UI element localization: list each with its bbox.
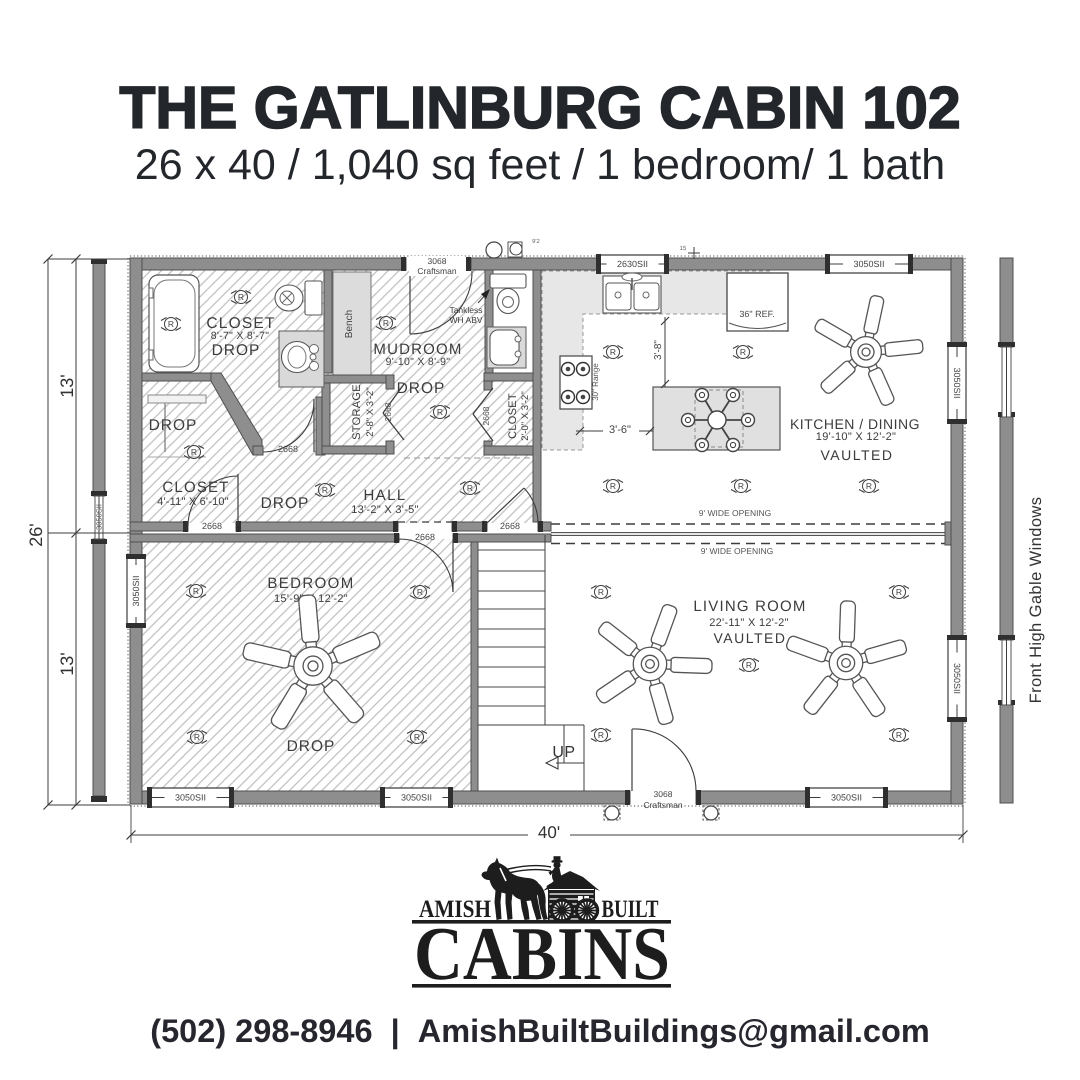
svg-text:Front High Gable Windows: Front High Gable Windows — [1027, 497, 1045, 704]
svg-text:3050SII: 3050SII — [131, 575, 141, 606]
svg-text:2668: 2668 — [500, 521, 520, 531]
svg-text:9' WIDE OPENING: 9' WIDE OPENING — [699, 508, 771, 518]
svg-text:2668: 2668 — [383, 402, 393, 421]
svg-text:R: R — [191, 447, 197, 457]
svg-text:40': 40' — [538, 823, 560, 842]
svg-text:9'-10" X 8'-9": 9'-10" X 8'-9" — [386, 356, 451, 368]
svg-text:9' WIDE OPENING: 9' WIDE OPENING — [701, 546, 773, 556]
svg-text:R: R — [414, 732, 420, 742]
svg-text:15: 15 — [680, 245, 687, 252]
svg-text:R: R — [168, 319, 174, 329]
svg-text:22'-11" X 12'-2": 22'-11" X 12'-2" — [709, 617, 789, 629]
svg-text:HALL: HALL — [363, 487, 406, 504]
svg-text:R: R — [866, 481, 872, 491]
svg-text:2668: 2668 — [202, 521, 222, 531]
svg-text:R: R — [610, 481, 616, 491]
svg-text:CLOSET: CLOSET — [162, 479, 229, 496]
svg-text:R: R — [238, 292, 244, 302]
svg-text:VAULTED: VAULTED — [714, 630, 787, 646]
svg-text:WH ABV: WH ABV — [449, 315, 482, 325]
svg-text:13': 13' — [57, 652, 77, 675]
svg-text:4'-11" X 6'-10": 4'-11" X 6'-10" — [157, 496, 229, 508]
svg-text:R: R — [598, 730, 604, 740]
svg-text:13'-2" X 3'-5": 13'-2" X 3'-5" — [351, 504, 419, 516]
svg-text:9'2: 9'2 — [532, 238, 540, 245]
svg-text:Craftsman: Craftsman — [417, 266, 456, 276]
svg-text:30" Range: 30" Range — [591, 363, 600, 401]
svg-text:3050SII: 3050SII — [831, 793, 862, 803]
svg-text:DROP: DROP — [397, 380, 446, 397]
svg-text:DROP: DROP — [149, 417, 198, 434]
svg-text:13': 13' — [57, 374, 77, 397]
svg-text:R: R — [610, 347, 616, 357]
svg-text:2668: 2668 — [481, 406, 491, 425]
svg-text:2668: 2668 — [415, 532, 435, 542]
svg-text:CLOSET: CLOSET — [507, 393, 519, 439]
svg-text:STORAGE: STORAGE — [351, 384, 363, 440]
svg-text:19'-10" X 12'-2": 19'-10" X 12'-2" — [816, 431, 896, 443]
svg-text:26': 26' — [26, 523, 46, 546]
svg-text:R: R — [738, 481, 744, 491]
svg-text:VAULTED: VAULTED — [821, 447, 894, 463]
svg-text:R: R — [437, 407, 443, 417]
svg-text:DROP: DROP — [212, 342, 261, 359]
svg-text:3068: 3068 — [428, 256, 447, 266]
svg-text:R: R — [322, 485, 328, 495]
svg-text:2668: 2668 — [278, 444, 298, 454]
svg-text:3050SII: 3050SII — [853, 259, 884, 269]
svg-text:DROP: DROP — [261, 495, 310, 512]
svg-text:2'-0" X 3'-2": 2'-0" X 3'-2" — [520, 391, 531, 440]
svg-text:DROP: DROP — [287, 738, 336, 755]
svg-text:Craftsman: Craftsman — [643, 800, 682, 810]
svg-text:2630SII: 2630SII — [617, 259, 648, 269]
svg-text:R: R — [740, 347, 746, 357]
svg-text:3'-8": 3'-8" — [653, 340, 664, 360]
svg-text:36" REF.: 36" REF. — [739, 309, 774, 319]
svg-text:R: R — [417, 587, 423, 597]
svg-text:R: R — [746, 660, 752, 670]
svg-text:UP: UP — [552, 744, 575, 761]
svg-text:3050SII: 3050SII — [952, 367, 962, 398]
svg-text:Bench: Bench — [344, 310, 355, 338]
svg-text:BEDROOM: BEDROOM — [267, 575, 354, 592]
svg-text:R: R — [896, 587, 902, 597]
svg-text:3068: 3068 — [654, 789, 673, 799]
svg-text:3050SII: 3050SII — [175, 793, 206, 803]
svg-text:3050SII: 3050SII — [952, 663, 962, 694]
svg-text:R: R — [896, 730, 902, 740]
svg-text:Tankless: Tankless — [449, 305, 482, 315]
svg-text:8'-7" X 8'-7": 8'-7" X 8'-7" — [211, 330, 270, 342]
svg-text:3'-6": 3'-6" — [609, 424, 631, 436]
svg-text:3050SII: 3050SII — [401, 793, 432, 803]
svg-text:R: R — [598, 587, 604, 597]
svg-text:LIVING ROOM: LIVING ROOM — [693, 598, 806, 615]
svg-text:R: R — [383, 318, 389, 328]
svg-text:R: R — [194, 732, 200, 742]
svg-text:KITCHEN / DINING: KITCHEN / DINING — [790, 416, 920, 432]
svg-text:R: R — [193, 586, 199, 596]
svg-text:3050SII: 3050SII — [95, 504, 104, 530]
svg-text:R: R — [467, 483, 473, 493]
svg-text:CABINS: CABINS — [414, 912, 670, 996]
svg-text:2'-8" X 3'-2": 2'-8" X 3'-2" — [365, 387, 376, 436]
